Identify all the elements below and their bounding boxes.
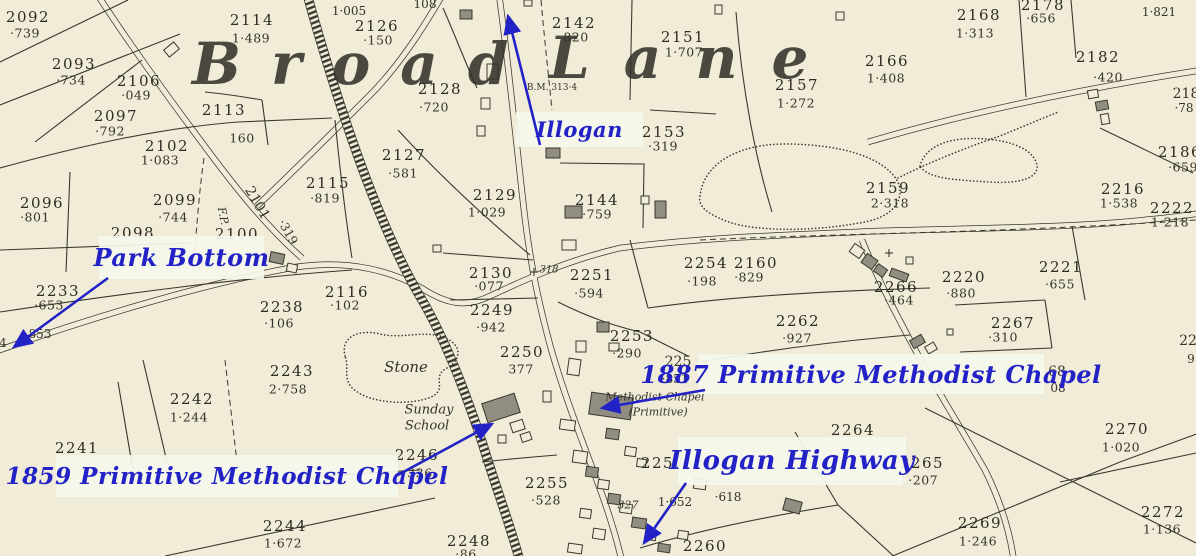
field-boundary [0,118,332,168]
building [947,329,953,335]
field-boundary [143,360,167,462]
building [562,240,576,250]
field-boundary [1045,300,1052,348]
annotation-label: 1859 Primitive Methodist Chapel [6,463,449,490]
annotation-label: 1887 Primitive Methodist Chapel [640,360,1101,389]
building [607,493,620,505]
field-boundary [66,172,70,272]
building [164,42,180,57]
building [433,245,441,252]
building [597,479,609,489]
building [609,343,619,351]
field-boundary [262,100,268,145]
building [631,517,646,529]
building [520,432,532,443]
building [597,322,609,332]
building [655,201,666,218]
building [585,466,598,478]
building [836,12,844,20]
building [906,257,913,264]
field-boundary [650,110,716,114]
footpath-dashed [225,360,237,462]
scrub-outline [898,112,1058,178]
building [1100,113,1110,124]
building [567,358,581,376]
building [481,98,490,109]
building [567,543,582,554]
building [677,530,688,539]
scrub-outline [700,144,900,229]
building [641,196,649,204]
building [482,393,521,423]
building [565,206,582,218]
annotation-label: Illogan Highway [669,446,915,476]
annotation-1859-chapel: 1859 Primitive Methodist Chapel [56,455,398,497]
building [589,392,634,420]
building [269,252,285,265]
annotation-label: Illogan [536,117,623,142]
building [619,503,632,514]
building [524,0,532,6]
map-title-lane: Lane [549,24,842,92]
field-boundary [398,130,530,255]
building [624,446,636,456]
field-boundary [1072,226,1085,300]
field-boundary [450,298,538,300]
building [477,126,485,136]
field-boundary [925,408,1196,543]
field-boundary [443,253,533,260]
building [286,263,297,273]
building [658,543,671,553]
building [715,5,722,14]
field-boundary [960,348,1052,352]
annotation-illogan-highway: Illogan Highway [678,437,906,485]
field-boundary [0,34,180,105]
building [559,419,575,431]
building [636,458,646,467]
building [783,498,803,514]
field-boundary [640,505,838,548]
building [605,428,619,440]
field-boundary [165,498,435,556]
field-boundary [838,505,900,556]
annotation-illogan: Illogan [516,112,643,147]
field-boundary [0,0,128,62]
building [889,268,909,282]
building [498,435,506,443]
building [546,148,560,158]
annotation-label: Park Bottom [94,243,270,272]
building [572,450,588,464]
field-boundary [482,455,557,462]
road-surface [862,240,1014,556]
building [925,342,938,354]
field-boundary [560,163,643,164]
building [579,508,591,518]
building [460,10,472,19]
building [644,530,656,540]
map-title-broad: Broad [192,30,538,98]
field-boundary [1071,0,1076,58]
field-boundary [630,240,648,308]
building [510,419,525,433]
field-boundary [878,432,1196,556]
field-boundary [1019,0,1026,97]
building [1095,100,1108,111]
building [1087,89,1098,99]
building [576,341,586,352]
field-boundary [1060,453,1196,482]
field-boundary [640,332,688,356]
annotation-park-bottom: Park Bottom [99,236,264,279]
os-map: Broad Lane 2092·7392093·7342106·0492097·… [0,0,1196,556]
field-boundary [1100,128,1193,173]
field-boundary [955,300,1045,305]
annotation-1887-chapel: 1887 Primitive Methodist Chapel [698,354,1044,394]
building [592,528,605,540]
field-boundary [35,60,142,142]
building [543,391,551,402]
scrub-outline [920,138,1037,182]
